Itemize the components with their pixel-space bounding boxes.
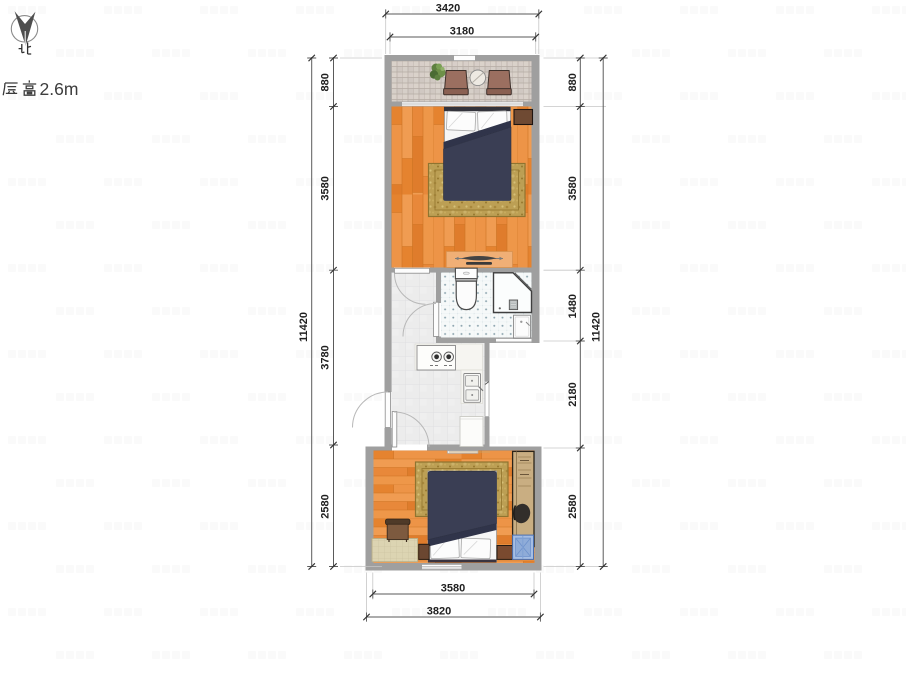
svg-text:880: 880: [567, 73, 579, 91]
svg-text:2580: 2580: [320, 494, 332, 518]
svg-text:3180: 3180: [450, 26, 474, 38]
svg-text:3820: 3820: [427, 606, 451, 618]
svg-text:3580: 3580: [320, 176, 332, 200]
svg-text:11420: 11420: [298, 312, 310, 342]
svg-text:11420: 11420: [591, 312, 603, 342]
svg-text:3420: 3420: [436, 3, 460, 15]
svg-text:3780: 3780: [320, 345, 332, 369]
svg-text:3580: 3580: [567, 176, 579, 200]
svg-text:2.6m: 2.6m: [40, 79, 79, 99]
svg-text:2580: 2580: [567, 494, 579, 518]
svg-text:1480: 1480: [567, 294, 579, 318]
svg-text:3580: 3580: [441, 583, 465, 595]
svg-text:2180: 2180: [567, 382, 579, 406]
svg-text:880: 880: [320, 73, 332, 91]
